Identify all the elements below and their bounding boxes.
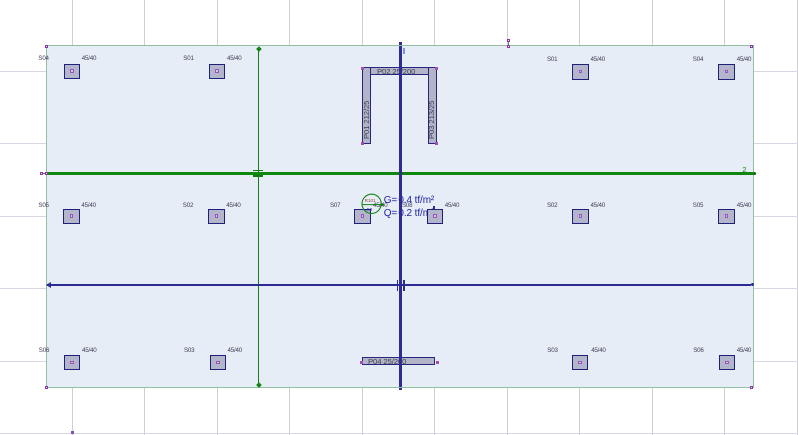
svg-text:R101: R101 (365, 198, 376, 203)
svg-text:=50: =50 (364, 207, 372, 213)
